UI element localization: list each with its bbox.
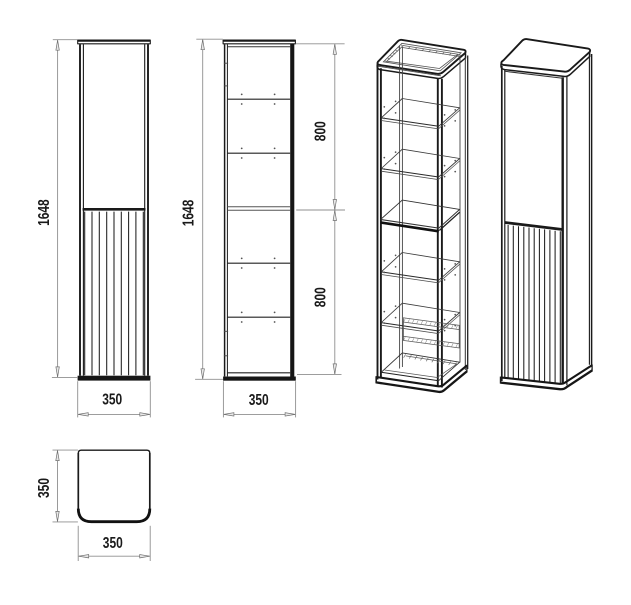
svg-text:350: 350	[36, 478, 53, 498]
svg-text:350: 350	[103, 535, 123, 552]
svg-text:800: 800	[312, 287, 329, 307]
svg-text:350: 350	[102, 391, 122, 408]
svg-text:350: 350	[249, 392, 269, 409]
svg-text:1648: 1648	[181, 200, 198, 227]
svg-text:1648: 1648	[36, 199, 53, 226]
svg-text:800: 800	[312, 121, 329, 141]
